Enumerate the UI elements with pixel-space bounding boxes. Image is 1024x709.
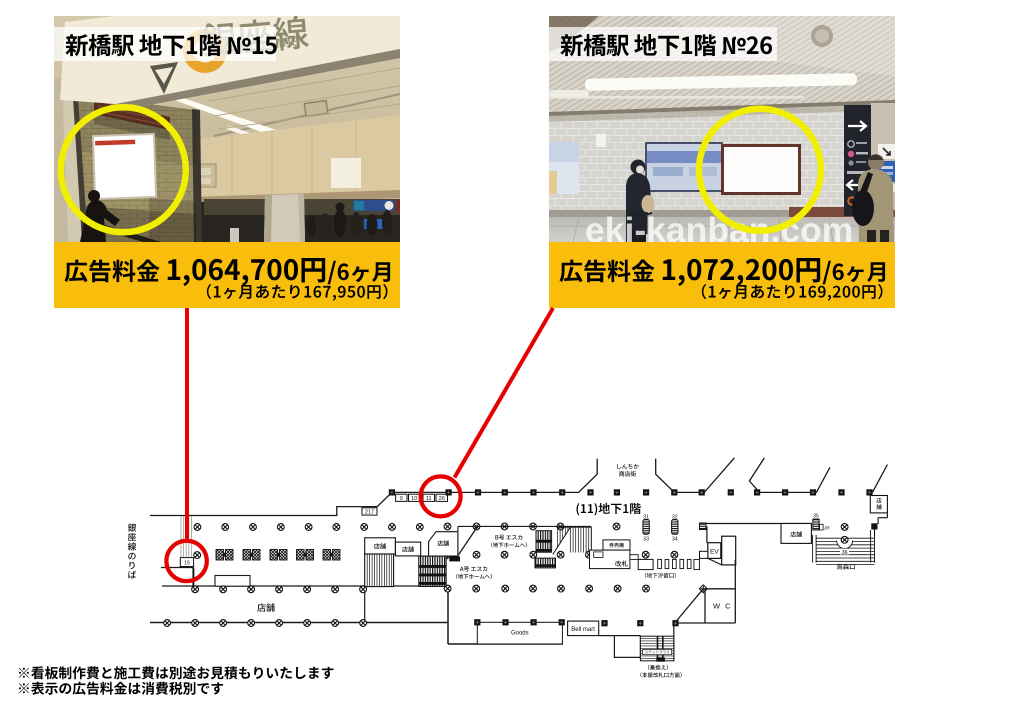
svg-text:EV: EV [710, 549, 719, 556]
svg-text:Goods: Goods [511, 631, 529, 637]
svg-text:36: 36 [842, 550, 848, 556]
svg-text:10: 10 [411, 496, 417, 502]
svg-text:15: 15 [184, 560, 190, 566]
svg-text:11: 11 [426, 496, 432, 502]
svg-text:W C: W C [713, 602, 732, 611]
svg-text:33: 33 [643, 536, 649, 542]
svg-text:9: 9 [400, 496, 403, 502]
svg-text:JR: JR [824, 526, 830, 532]
svg-text:217: 217 [365, 510, 374, 516]
svg-text:26: 26 [439, 496, 445, 502]
svg-text:Bell mart: Bell mart [571, 627, 595, 633]
svg-text:34: 34 [672, 536, 678, 542]
